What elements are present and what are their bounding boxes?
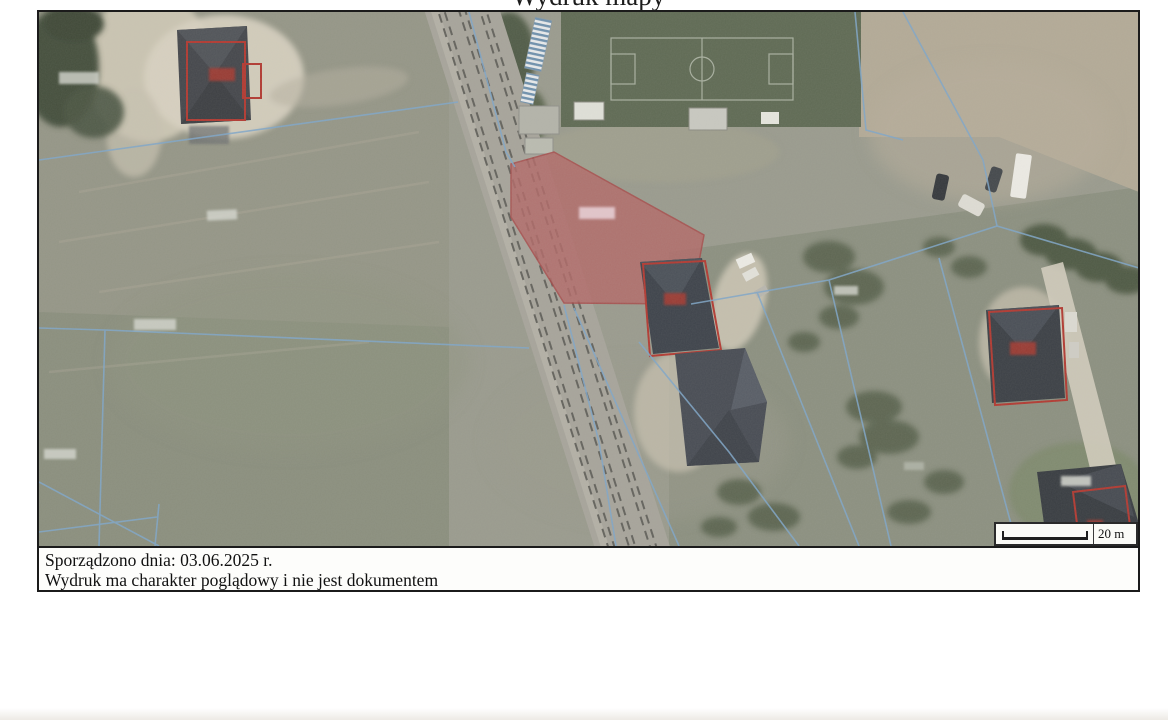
footer-box: Sporządzono dnia: 03.06.2025 r. Wydruk m… [37, 546, 1140, 592]
map-printout-page: Wydruk mapy [0, 0, 1168, 720]
footer-disclaimer-line: Wydruk ma charakter poglądowy i nie jest… [45, 570, 1138, 590]
scale-bar-label: 20 m [1093, 524, 1136, 544]
photo-grain-overlay [39, 12, 1138, 546]
scale-bar: 20 m [994, 522, 1138, 546]
aerial-orthophoto [39, 12, 1138, 546]
scan-edge-shadow [0, 708, 1168, 720]
map-viewport: 20 m [37, 10, 1140, 548]
page-title: Wydruk mapy [37, 0, 1140, 10]
scale-bar-line [1002, 531, 1088, 540]
page-title-text: Wydruk mapy [37, 0, 1140, 10]
footer-date-line: Sporządzono dnia: 03.06.2025 r. [45, 550, 1138, 570]
